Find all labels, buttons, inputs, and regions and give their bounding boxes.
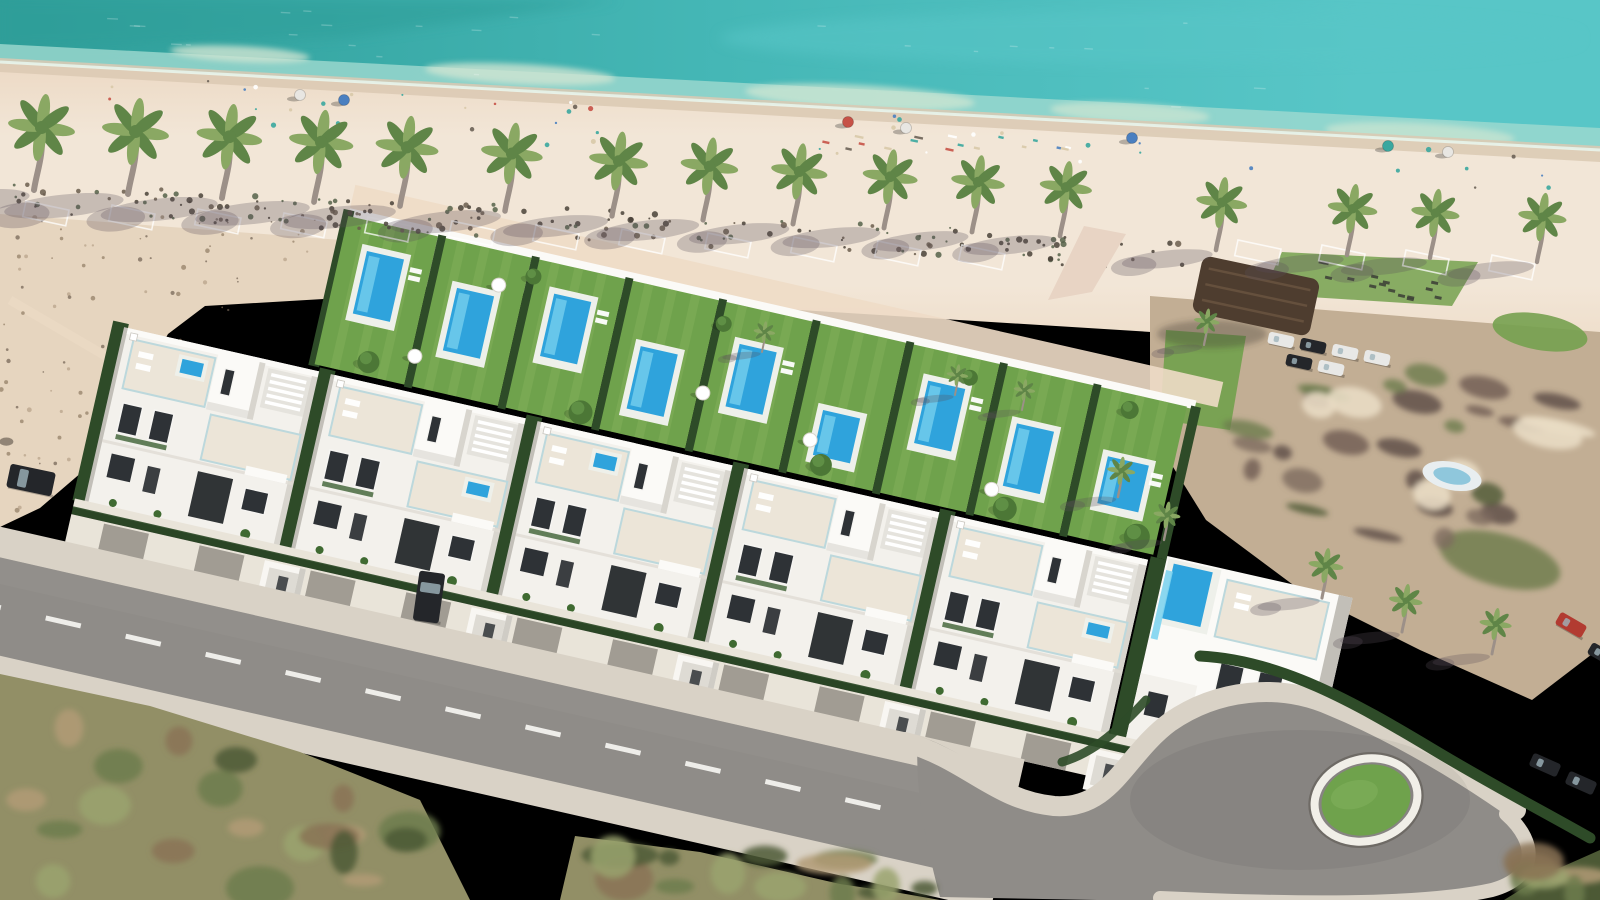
pebble <box>205 260 207 262</box>
bush <box>591 836 635 879</box>
pebble <box>176 292 180 296</box>
beach-speck <box>573 105 577 109</box>
bush <box>343 874 383 887</box>
debris-speck <box>318 198 321 201</box>
debris-speck <box>43 193 46 196</box>
debris-speck <box>1063 236 1066 239</box>
bush <box>655 879 694 894</box>
umbrella <box>339 95 350 106</box>
pebble <box>58 436 62 440</box>
umbrella <box>843 117 854 128</box>
window <box>654 582 682 609</box>
pebble <box>7 452 11 456</box>
debris-speck <box>474 233 478 237</box>
debris-speck <box>174 191 179 196</box>
pebble <box>51 257 53 259</box>
pebble <box>138 257 142 261</box>
palm-crown-center <box>1164 512 1169 517</box>
debris-speck <box>1175 241 1181 247</box>
beach-speck <box>255 108 257 110</box>
pebble <box>18 268 21 271</box>
umbrella <box>901 123 912 134</box>
pebble <box>221 306 223 308</box>
bush <box>911 881 937 896</box>
pebble <box>21 286 24 289</box>
pebble <box>38 457 41 460</box>
pebble <box>236 277 238 279</box>
bush <box>830 876 855 900</box>
pebble <box>227 309 229 311</box>
umbrella <box>1127 133 1138 144</box>
palm-crown-center <box>1118 468 1123 473</box>
beach-speck <box>271 122 276 127</box>
sea-bright-streak <box>720 12 1580 64</box>
beach-speck <box>1139 142 1141 144</box>
pebble <box>82 264 86 268</box>
debris-speck <box>1167 241 1172 246</box>
pebble <box>18 506 22 510</box>
bush <box>711 853 745 894</box>
pebble <box>205 248 210 253</box>
debris-speck <box>1048 256 1053 261</box>
debris-speck <box>621 211 625 215</box>
chimney <box>543 427 551 435</box>
wave-fleck <box>1049 47 1054 49</box>
beach-speck <box>588 106 593 111</box>
bush <box>215 747 257 773</box>
beach-speck <box>1078 160 1082 164</box>
bush <box>55 709 84 747</box>
beach-speck <box>401 94 403 96</box>
palm-crown-center <box>1403 598 1410 605</box>
debris-speck <box>733 222 735 224</box>
pebble <box>221 233 224 236</box>
bush <box>198 770 243 806</box>
beach-speck <box>567 109 572 114</box>
pebble <box>91 296 96 301</box>
bush <box>79 786 131 825</box>
beach-speck <box>819 148 821 150</box>
palm-crown-center <box>762 330 766 334</box>
debris-speck <box>1051 245 1054 248</box>
palm-crown-center <box>973 177 983 187</box>
pebble <box>60 228 62 230</box>
chimney <box>129 333 137 341</box>
beach-speck <box>596 131 599 134</box>
chimney <box>956 521 964 529</box>
debris-speck <box>987 233 992 238</box>
wave-fleck <box>474 74 479 76</box>
umbrella <box>1383 141 1394 152</box>
pebble <box>53 462 57 466</box>
window <box>447 535 475 562</box>
beach-speck <box>207 80 209 82</box>
beach-speck <box>1541 175 1543 177</box>
debris-speck <box>159 187 163 191</box>
pebble <box>53 305 56 308</box>
debris-speck <box>704 222 707 225</box>
bush <box>796 854 872 875</box>
palm-crown-center <box>223 130 236 143</box>
palm-crown-center <box>506 148 518 160</box>
debris-speck <box>1027 251 1032 256</box>
pebble <box>237 281 239 283</box>
bush <box>330 830 357 874</box>
scene-render <box>0 0 1600 900</box>
umbrella <box>295 90 306 101</box>
pebble <box>250 237 253 240</box>
wave-fleck <box>1145 88 1149 90</box>
beach-speck <box>321 101 325 105</box>
debris-speck <box>629 217 634 222</box>
pebble <box>171 291 175 295</box>
bush <box>6 789 46 812</box>
beach-speck <box>1086 143 1091 148</box>
umbrella <box>1443 147 1454 158</box>
debris-speck <box>565 206 570 211</box>
palm-crown-center <box>1538 212 1547 221</box>
beach-speck <box>836 152 839 155</box>
beach-speck <box>555 122 557 124</box>
pebble <box>27 407 32 412</box>
palm-crown-center <box>955 373 959 377</box>
beach-speck <box>494 103 497 106</box>
beach-speck <box>971 132 975 136</box>
pebble <box>68 295 72 299</box>
pebble <box>101 345 105 349</box>
pebble <box>78 414 82 418</box>
palm-crown-center <box>1217 198 1227 208</box>
pebble <box>16 406 19 409</box>
palm-crown-center <box>613 155 624 166</box>
window <box>241 488 269 515</box>
rock-cluster <box>0 437 13 445</box>
debris-speck <box>914 253 916 255</box>
palm-crown-center <box>1348 204 1358 214</box>
pebble <box>17 254 21 258</box>
bush <box>332 785 354 813</box>
debris-speck <box>871 224 875 228</box>
window <box>1068 676 1096 703</box>
bush <box>1503 843 1564 881</box>
beach-speck <box>591 139 596 144</box>
pebble <box>67 367 70 370</box>
palm-crown-center <box>1323 562 1330 569</box>
beach-speck <box>243 88 246 91</box>
debris-speck <box>328 201 332 205</box>
palm-crown-center <box>401 141 413 153</box>
car <box>1564 771 1599 798</box>
debris-speck <box>1022 254 1025 257</box>
pebble <box>67 458 71 462</box>
pebble <box>306 251 308 253</box>
pebble <box>42 371 44 373</box>
palm-crown-center <box>1431 208 1440 217</box>
debris-speck <box>493 207 498 212</box>
beach-speck <box>1465 167 1469 171</box>
palm-crown-center <box>885 171 896 182</box>
debris-speck <box>390 201 394 205</box>
pebble <box>15 235 19 239</box>
pebble <box>102 256 105 259</box>
beach-speck <box>470 127 474 131</box>
window <box>861 629 889 656</box>
pebble <box>60 237 64 241</box>
bush <box>228 819 264 837</box>
pebble <box>140 238 142 240</box>
pebble <box>150 257 152 259</box>
beach-speck <box>289 108 292 111</box>
palm-crown-center <box>129 125 142 138</box>
debris-speck <box>652 211 658 217</box>
beach-speck <box>464 107 466 109</box>
beach-speck <box>891 125 896 130</box>
car <box>1528 753 1563 780</box>
debris-speck <box>886 232 888 234</box>
debris-speck <box>1057 258 1060 261</box>
pebble <box>3 324 5 326</box>
beach-speck <box>1396 169 1400 173</box>
pebble <box>67 292 71 296</box>
pebble <box>85 411 88 414</box>
debris-speck <box>13 184 16 187</box>
bush <box>36 864 70 898</box>
beach-speck <box>108 98 111 101</box>
beach-speck <box>545 143 550 148</box>
chimney <box>336 380 344 388</box>
debris-speck <box>935 252 941 258</box>
beach-speck <box>1139 152 1141 154</box>
palm-crown-center <box>35 121 48 134</box>
beach-speck <box>897 117 902 122</box>
bush <box>384 828 427 852</box>
palm-crown-center <box>1022 388 1026 392</box>
pebble <box>292 241 294 243</box>
debris-speck <box>648 218 650 220</box>
bush <box>742 846 787 867</box>
beach-speck <box>111 85 114 88</box>
debris-speck <box>76 189 81 194</box>
debris-speck <box>357 226 361 230</box>
pebble <box>50 390 52 392</box>
bush <box>152 839 195 864</box>
aerial-render-image <box>0 0 1600 900</box>
pebble <box>283 258 287 262</box>
pebble <box>39 463 41 465</box>
beach-speck <box>253 85 258 90</box>
pebble <box>6 348 9 351</box>
beach-speck <box>1546 185 1551 190</box>
pebble <box>63 361 66 364</box>
beach-speck <box>1000 131 1004 135</box>
pebble <box>209 245 211 247</box>
pebble <box>203 280 207 284</box>
beach-speck <box>1512 155 1516 159</box>
debris-speck <box>1058 253 1061 256</box>
palm-crown-center <box>794 166 805 177</box>
pebble <box>24 254 28 258</box>
palm-crown-center <box>1061 182 1071 192</box>
pebble <box>79 391 83 395</box>
palm-crown-center <box>1204 319 1209 324</box>
debris-speck <box>843 246 846 249</box>
pebble <box>20 419 24 423</box>
debris-speck <box>447 206 453 212</box>
debris-speck <box>458 205 464 211</box>
wave-fleck <box>186 44 191 46</box>
debris-speck <box>949 227 951 229</box>
debris-speck <box>797 229 801 233</box>
debris-speck <box>467 205 471 209</box>
pebble <box>60 410 63 413</box>
wave-fleck <box>1183 22 1187 24</box>
beach-speck <box>1426 147 1431 152</box>
debris-speck <box>25 183 29 187</box>
debris-speck <box>858 222 863 227</box>
pebble <box>181 265 186 270</box>
beach-speck <box>893 114 896 117</box>
palm-crown-center <box>704 161 715 172</box>
debris-speck <box>1061 263 1064 266</box>
debris-speck <box>346 199 350 203</box>
pebble <box>6 359 10 363</box>
debris-speck <box>847 248 851 252</box>
debris-speck <box>145 192 149 196</box>
bush <box>37 821 83 839</box>
debris-speck <box>521 209 526 214</box>
pebble <box>4 380 8 384</box>
debris-speck <box>252 193 258 199</box>
chimney <box>750 474 758 482</box>
beach-speck <box>1249 166 1253 170</box>
bush <box>659 850 680 866</box>
bush <box>94 749 143 784</box>
pebble <box>144 290 147 293</box>
debris-speck <box>198 193 203 198</box>
beach-speck <box>1474 186 1476 188</box>
beach-speck <box>569 101 572 104</box>
pebble <box>92 244 94 246</box>
palm-crown-center <box>315 136 327 148</box>
beach-speck <box>350 93 353 96</box>
bush <box>165 726 192 755</box>
palm-crown-center <box>1492 621 1498 627</box>
pebble <box>84 244 86 246</box>
debris-speck <box>921 251 927 257</box>
beach-speck <box>925 151 927 153</box>
wave-fleck <box>974 51 978 53</box>
pebble <box>24 454 27 457</box>
debris-speck <box>163 193 168 198</box>
pebble <box>145 235 147 237</box>
debris-speck <box>491 203 495 207</box>
debris-speck <box>333 199 338 204</box>
pebble <box>21 311 25 315</box>
